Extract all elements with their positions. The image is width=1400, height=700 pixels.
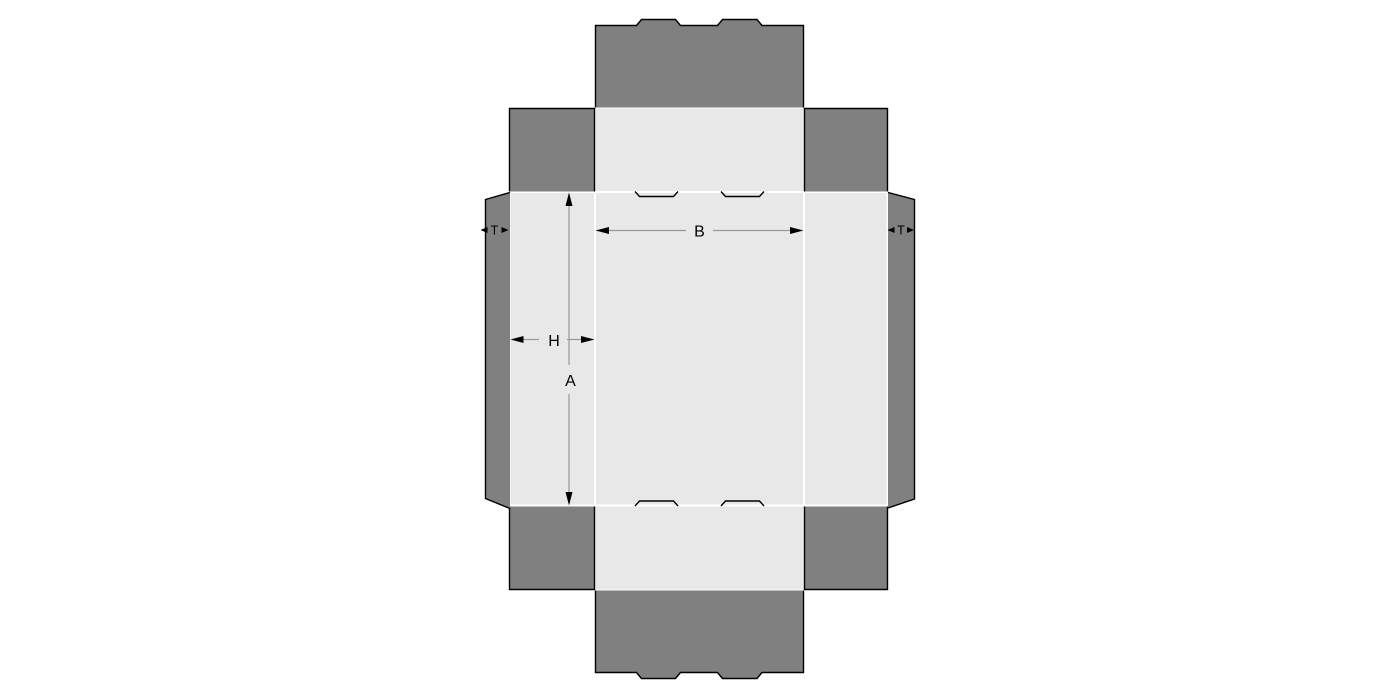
bottom-left-dust-flap: [510, 507, 595, 590]
right-side-panel: [805, 193, 887, 505]
dieline-diagram: B A H T T: [0, 0, 1400, 700]
bottom-right-dust-flap: [805, 507, 888, 590]
dimension-T-left-arrow-left: [481, 227, 488, 233]
dieline-canvas: B A H T T: [0, 0, 1400, 700]
top-left-dust-flap: [510, 109, 595, 192]
right-glue-flap: [888, 193, 915, 509]
left-glue-flap: [486, 193, 511, 509]
bottom-panel: [596, 507, 804, 590]
dimension-T-left-label: T: [491, 224, 499, 238]
top-panel: [596, 109, 804, 192]
dimension-A-label: A: [565, 373, 576, 390]
top-right-dust-flap: [805, 109, 888, 192]
dimension-T-right-label: T: [897, 224, 905, 238]
dimension-H-label: H: [548, 333, 560, 350]
bottom-closure-flap: [596, 591, 804, 679]
top-closure-flap: [596, 20, 804, 108]
dimension-B-label: B: [694, 224, 705, 241]
